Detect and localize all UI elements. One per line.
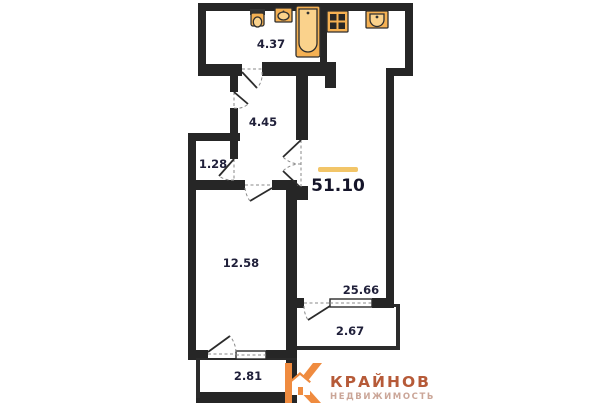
wall-segment — [188, 140, 196, 360]
wall-segment — [230, 108, 238, 135]
balcony-right-bottom — [297, 346, 400, 350]
floorplan-page: 4.37 4.45 1.28 12.58 25.66 2.67 2.81 51.… — [0, 0, 605, 403]
balcony-left-wall — [196, 358, 200, 398]
brand-logo: КРАЙНОВ НЕДВИЖИМОСТЬ — [285, 363, 435, 403]
total-area-accent-line — [318, 167, 358, 172]
bathroom-door-arc — [242, 72, 262, 88]
wall-segment — [230, 133, 238, 159]
total-area: 51.10 — [311, 167, 365, 196]
balcony-right-wall — [396, 304, 400, 350]
bath-sink-icon — [275, 8, 292, 22]
floorplan-drawing: 4.37 4.45 1.28 12.58 25.66 2.67 2.81 51.… — [0, 0, 605, 403]
entry-door-arc — [234, 92, 248, 108]
wall-segment — [325, 76, 336, 88]
kitchen-sink-icon — [366, 11, 388, 28]
wall-segment — [188, 180, 245, 190]
doors — [208, 72, 330, 352]
total-area-label: 51.10 — [311, 176, 365, 196]
bedroom-door-arc — [245, 188, 272, 201]
room-label-balcony-right: 2.67 — [336, 324, 364, 338]
room-label-bedroom: 12.58 — [223, 256, 259, 270]
wall-segment — [386, 68, 394, 308]
stove-icon — [327, 11, 348, 32]
wall-segment — [286, 188, 308, 198]
logo-k-house-icon — [285, 363, 322, 403]
balcony-right-top — [394, 304, 400, 307]
room-label-bathroom: 4.37 — [257, 37, 285, 51]
room-label-living-room: 25.66 — [343, 283, 379, 297]
wall-segment — [320, 3, 327, 64]
wall-segment — [198, 64, 242, 76]
balcony-left-door-arc — [208, 336, 236, 352]
room-label-closet: 1.28 — [199, 157, 227, 171]
wall-segment — [272, 180, 288, 190]
wall-segment — [196, 392, 297, 403]
room-label-balcony-left: 2.81 — [234, 369, 262, 383]
room-label-hallway: 4.45 — [249, 115, 277, 129]
brand-name: КРАЙНОВ — [330, 372, 431, 391]
wall-segment — [405, 3, 413, 76]
brand-subtitle: НЕДВИЖИМОСТЬ — [330, 392, 435, 402]
bathtub-icon — [296, 6, 320, 57]
balcony-right-door-arc — [304, 306, 330, 320]
toilet-icon — [250, 9, 265, 27]
wall-segment — [372, 298, 394, 308]
wall-segment — [296, 62, 308, 140]
bedroom-window — [236, 351, 266, 359]
